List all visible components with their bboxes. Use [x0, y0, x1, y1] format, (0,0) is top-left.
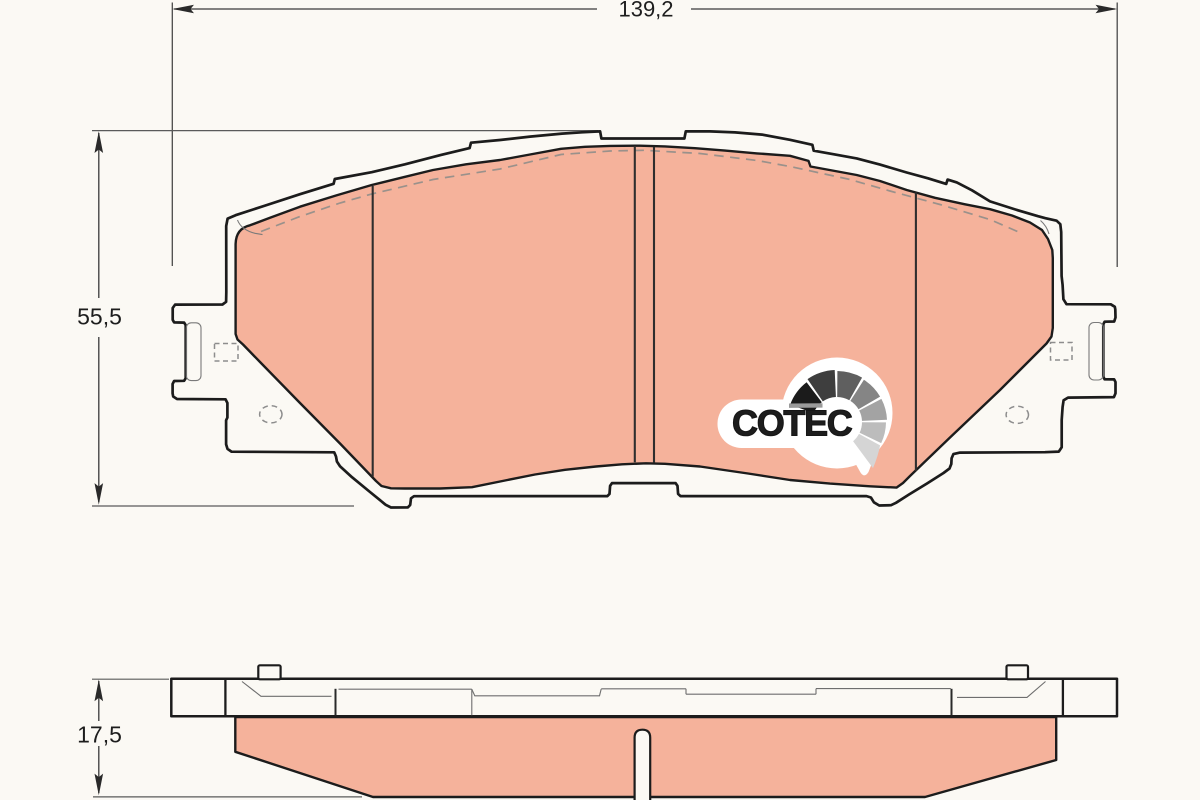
- svg-text:COTEC: COTEC: [732, 403, 853, 444]
- svg-text:17,5: 17,5: [77, 722, 122, 748]
- svg-text:139,2: 139,2: [618, 0, 673, 22]
- svg-text:55,5: 55,5: [77, 304, 122, 330]
